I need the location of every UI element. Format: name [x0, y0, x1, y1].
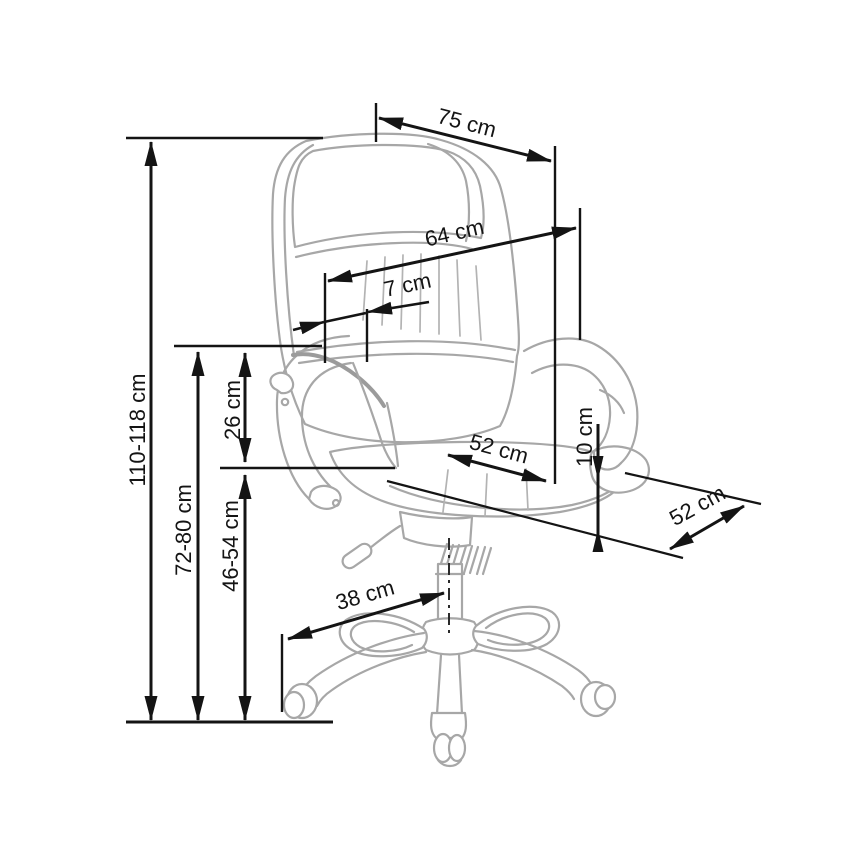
dim-label-armrest-above-seat: 26 cm: [220, 380, 245, 440]
chair-dimension-diagram: 110-118 cm 72-80 cm 46-54 cm 26 cm 75 cm…: [0, 0, 868, 868]
chair-mechanism-plate: [400, 512, 472, 547]
chair-casters: [284, 682, 615, 766]
left-armrest-screw: [282, 399, 288, 405]
dim-label-armrest-height: 72-80 cm: [171, 484, 196, 576]
dimension-diagram-page: 110-118 cm 72-80 cm 46-54 cm 26 cm 75 cm…: [0, 0, 868, 868]
chair-tilt-lever-arm: [370, 526, 400, 548]
dim-label-top-width: 75 cm: [435, 103, 499, 142]
dim-label-overall-height: 110-118 cm: [125, 374, 150, 487]
dim-label-seat-depth: 52 cm: [665, 480, 730, 531]
dim-label-cushion-thickness: 10 cm: [572, 407, 597, 467]
dim-label-seat-height: 46-54 cm: [218, 500, 243, 592]
cushion-arrow-up: [593, 529, 604, 552]
chair-tilt-lever-knob: [340, 541, 374, 571]
